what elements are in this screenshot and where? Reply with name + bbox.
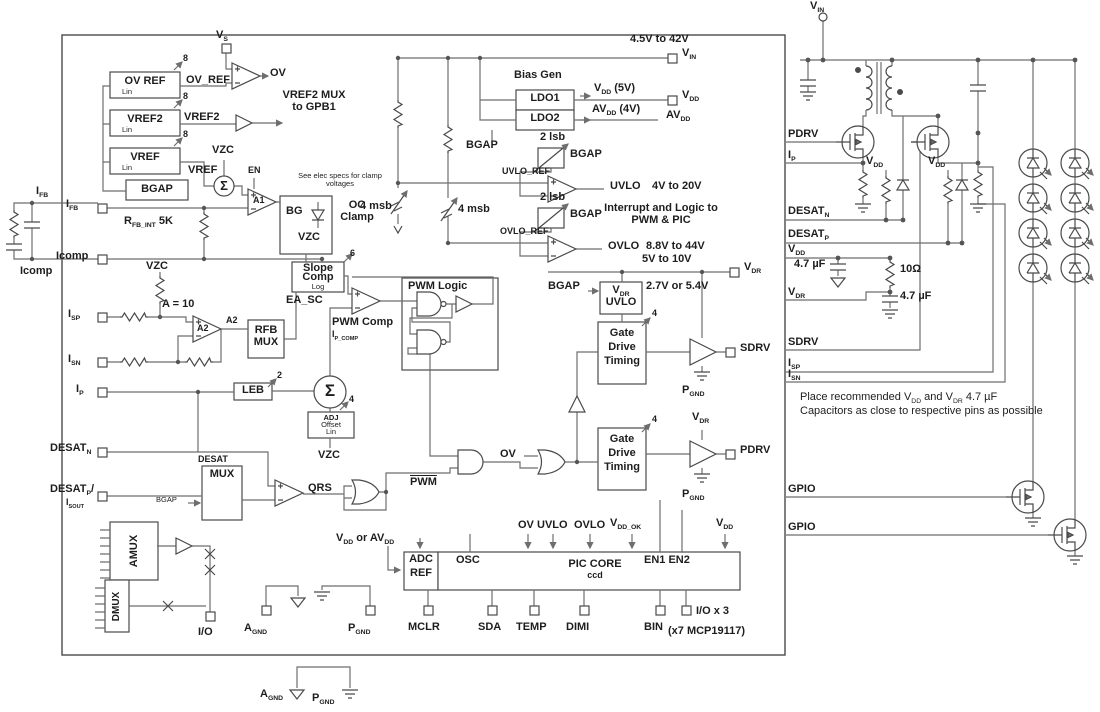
agnd-pin-label: AGND bbox=[244, 623, 267, 637]
bin-pin-label: BIN bbox=[644, 622, 663, 634]
uvlo-ref-label: UVLO_REF bbox=[502, 167, 550, 177]
bgap-block-label: BGAP bbox=[126, 184, 188, 196]
up-buffer-icon bbox=[569, 396, 585, 412]
desatn-pullup-icon bbox=[882, 176, 890, 204]
transformer-secondary-icon bbox=[886, 66, 892, 110]
pgnd-pin-label: PGND bbox=[348, 623, 370, 637]
ext-vdr-label: VDR bbox=[788, 287, 805, 301]
bgap-trim-label: BGAP bbox=[570, 209, 602, 221]
msb4-label: 4 msb bbox=[458, 204, 490, 216]
pullup-vdd-label-2: VDD bbox=[928, 156, 945, 170]
pic-uvlo-label: UVLO bbox=[537, 520, 568, 532]
msb-trim2-icon bbox=[441, 198, 457, 221]
sda-pin-label: SDA bbox=[478, 622, 501, 634]
lin-label: Lin bbox=[122, 126, 132, 134]
pdrv-pin-label: PDRV bbox=[740, 445, 770, 457]
desat-n-pin-label: DESATN bbox=[50, 443, 91, 457]
isout-label: ISOUT bbox=[66, 498, 84, 510]
ext-vdd-label: VDD bbox=[788, 244, 805, 258]
vdr-uvlo-label-2: UVLO bbox=[600, 297, 642, 309]
output-cap-icon bbox=[970, 85, 986, 91]
gain-label: A = 10 bbox=[162, 299, 194, 311]
desat-p-pin-label: DESATP/ bbox=[50, 484, 94, 498]
ifb-pin-label: IFB bbox=[66, 199, 78, 213]
sdrv-driver-icon bbox=[690, 339, 716, 365]
rfb-int-label: RFB_INT 5K bbox=[124, 216, 173, 230]
vref2-block-label: VREF2 bbox=[110, 114, 180, 126]
ip-comp-label: IP_COMP bbox=[332, 330, 358, 342]
lin-label: Lin bbox=[122, 88, 132, 96]
a2-signal-label: A2 bbox=[226, 316, 238, 326]
filter-resistor-icon bbox=[886, 260, 894, 288]
qrs-label: QRS bbox=[308, 483, 332, 495]
ovlo-comparator-icon bbox=[548, 236, 576, 262]
divider-arrow-icon bbox=[394, 226, 402, 233]
gpio1-gnd-icon bbox=[1025, 518, 1041, 526]
desat-label: DESAT bbox=[198, 455, 228, 465]
isp-pin-label: ISP bbox=[68, 309, 80, 323]
vzc-label: VZC bbox=[318, 450, 340, 462]
pgnd2-ground-icon bbox=[694, 474, 710, 482]
a1-label: A1 bbox=[253, 196, 265, 206]
led-icon bbox=[1019, 184, 1051, 214]
ea-sc-label: EA_SC bbox=[286, 295, 323, 307]
vdr-select-label: 2.7V or 5.4V bbox=[646, 281, 708, 293]
transformer-primary-icon bbox=[866, 66, 872, 110]
vdd-pin-label: VDD bbox=[682, 90, 699, 104]
vdd-5v-label: VDD (5V) bbox=[594, 83, 635, 97]
rfb-mux-label-2: MUX bbox=[248, 337, 284, 349]
dot-phase-icon bbox=[898, 90, 903, 95]
vdr-cap-icon bbox=[882, 296, 898, 302]
gdt1-label-2: Drive bbox=[598, 342, 646, 354]
gpio2-label: GPIO bbox=[788, 522, 816, 534]
lsb2-label: 2 lsb bbox=[540, 132, 565, 144]
desatp-pullup-icon bbox=[944, 176, 952, 204]
bgap-vdr-label: BGAP bbox=[548, 281, 580, 293]
transformer-core bbox=[877, 62, 881, 114]
desat-mux-label: MUX bbox=[202, 469, 242, 481]
bus2-label: 2 bbox=[277, 371, 282, 381]
pullup-vdd-label-1: VDD bbox=[866, 156, 883, 170]
comp-capacitor-icon bbox=[6, 244, 22, 250]
ov-ref-signal-label: OV_REF bbox=[186, 75, 230, 87]
io-pin-label: I/O bbox=[198, 627, 213, 639]
amux-label: AMUX bbox=[110, 522, 158, 580]
ovlo-ref-label: OVLO_REF bbox=[500, 227, 549, 237]
uvlo-range-label: 4V to 20V bbox=[652, 181, 702, 193]
ovlo-label: OVLO bbox=[608, 241, 639, 253]
bgap-small-label: BGAP bbox=[156, 496, 177, 504]
ext-desat-n-label: DESATN bbox=[788, 206, 829, 220]
ip-pin-label: IP bbox=[76, 384, 84, 398]
pwm-comp-icon bbox=[352, 288, 380, 314]
ifb-node-label: IFB bbox=[36, 186, 48, 200]
desat-comparator-icon bbox=[275, 480, 303, 506]
ext-desat-p-label: DESATP bbox=[788, 229, 829, 243]
ov-comparator-icon bbox=[232, 63, 260, 89]
slope-label-3: Log bbox=[292, 283, 344, 291]
gdt1-label-3: Timing bbox=[598, 356, 646, 368]
bgap-trim-label: BGAP bbox=[570, 149, 602, 161]
external-wires bbox=[786, 21, 1075, 556]
ground-legend-wire bbox=[297, 667, 350, 688]
vdr-drive-label: VDR bbox=[692, 412, 709, 426]
ip-sense-resistor-icon bbox=[859, 170, 867, 198]
icomp-node-label: Icomp bbox=[20, 266, 52, 278]
isn-pin-label: ISN bbox=[68, 354, 81, 368]
bus4-label: 4 bbox=[652, 309, 657, 319]
avdd-4v-label: AVDD (4V) bbox=[592, 104, 640, 118]
vref2-mux-note: VREF2 MUX to GPB1 bbox=[282, 90, 346, 114]
bus8-label: 8 bbox=[183, 54, 188, 64]
ext-ip-label: IP bbox=[788, 150, 796, 164]
isn-resistor-icon bbox=[120, 358, 148, 366]
led-icon bbox=[1061, 184, 1093, 214]
led-icon bbox=[1019, 254, 1051, 284]
vdd-ok-label: VDD_OK bbox=[610, 518, 641, 532]
sum-symbol: Σ bbox=[218, 179, 230, 193]
vzc-label: VZC bbox=[298, 232, 320, 244]
pwm-comp-label: PWM Comp bbox=[332, 317, 393, 329]
drive-or-gate-icon bbox=[538, 450, 565, 474]
input-cap-icon bbox=[800, 80, 816, 86]
ip-sense-gnd-icon bbox=[855, 204, 871, 212]
isense-resistor-icon bbox=[974, 170, 982, 198]
uvlo-label: UVLO bbox=[610, 181, 641, 193]
legend-pgnd-icon bbox=[342, 690, 358, 698]
vdr-cap-label: 4.7 µF bbox=[900, 291, 931, 303]
rfb-int-resistor-icon bbox=[200, 212, 208, 240]
lsb2-label: 2 lsb bbox=[540, 192, 565, 204]
ov-ref-block-label: OV REF bbox=[110, 76, 180, 88]
ldo1-label: LDO1 bbox=[516, 93, 574, 105]
dmux-label: DMUX bbox=[105, 580, 129, 632]
vin-range-label: 4.5V to 42V bbox=[630, 34, 689, 46]
vdd-cap-label: 4.7 µF bbox=[794, 259, 825, 271]
pdrv-driver-icon bbox=[690, 441, 716, 467]
vdr-pin-label: VDR bbox=[744, 262, 761, 276]
qrs-or-gate-icon bbox=[352, 480, 379, 504]
input-cap-gnd-icon bbox=[800, 92, 816, 100]
pwm-logic-label: PWM Logic bbox=[408, 281, 467, 293]
vdr-range-label: 5V to 10V bbox=[642, 254, 692, 266]
msb-trim1-icon bbox=[391, 191, 407, 214]
desatn-diode-icon bbox=[897, 180, 909, 190]
ext-pdrv-label: PDRV bbox=[788, 129, 818, 141]
legend-agnd-label: AGND bbox=[260, 689, 283, 703]
bus4-label: 4 bbox=[349, 395, 354, 405]
pwm-bar-label: PWM bbox=[410, 477, 437, 489]
primary-mosfet-icon bbox=[836, 126, 874, 158]
ext-isn-label: ISN bbox=[788, 369, 801, 383]
temp-pin-label: TEMP bbox=[516, 622, 547, 634]
uvlo-div-resistor-icon bbox=[394, 100, 402, 128]
desatp-diode-icon bbox=[956, 180, 968, 190]
pgnd1-ground-icon bbox=[694, 372, 710, 380]
comp-capacitor2-icon bbox=[24, 222, 40, 228]
adj-label-3: Lin bbox=[308, 428, 354, 436]
placement-note-2: Capacitors as close to respective pins a… bbox=[800, 406, 1043, 418]
block-diagram-canvas: VS OV_REF OV OV REF Lin VREF2 Lin VREF L… bbox=[0, 0, 1100, 712]
dot-phase-icon bbox=[856, 68, 861, 73]
amux-buffer-icon bbox=[176, 538, 192, 554]
gdt2-label-2: Drive bbox=[598, 448, 646, 460]
ldo2-label: LDO2 bbox=[516, 113, 574, 125]
led-icon bbox=[1061, 219, 1093, 249]
agnd-symbol-icon bbox=[291, 598, 305, 607]
ccd-label: ccd bbox=[520, 571, 670, 581]
adc-label: ADC bbox=[404, 554, 438, 566]
ext-vin-label: VIN bbox=[810, 1, 824, 15]
gdt2-label-1: Gate bbox=[598, 434, 646, 446]
msb4-label: 4 msb bbox=[360, 201, 392, 213]
bg-label: BG bbox=[286, 206, 303, 218]
isp-resistor-icon bbox=[120, 313, 148, 321]
sum-symbol-big: Σ bbox=[322, 382, 338, 400]
led-icon bbox=[1019, 149, 1051, 179]
bus6-label: 6 bbox=[350, 249, 355, 259]
vref-signal-label: VREF bbox=[188, 165, 217, 177]
legend-agnd-icon bbox=[290, 690, 304, 699]
iox3-pin-label: I/O x 3 bbox=[696, 606, 729, 618]
vin-pin-label: VIN bbox=[682, 48, 696, 62]
vdr-cap-gnd-icon bbox=[882, 310, 898, 318]
isense-gnd-icon bbox=[970, 204, 986, 212]
mclr-pin-label: MCLR bbox=[408, 622, 440, 634]
comp-resistor-icon bbox=[10, 210, 18, 238]
pgnd-label: PGND bbox=[682, 489, 704, 503]
fb-resistor-icon bbox=[185, 358, 213, 366]
sync-mosfet-icon bbox=[911, 126, 949, 158]
pic-ov-label: OV bbox=[518, 520, 534, 532]
avdd-label: AVDD bbox=[666, 110, 690, 124]
en1-en2-label: EN1 EN2 bbox=[644, 555, 690, 567]
dimi-pin-label: DIMI bbox=[566, 622, 589, 634]
bus8-label: 8 bbox=[183, 130, 188, 140]
en-label: EN bbox=[248, 166, 261, 176]
vzc-label: VZC bbox=[212, 145, 234, 157]
ov-mid-label: OV bbox=[500, 449, 516, 461]
vdd-cap-icon bbox=[830, 264, 846, 270]
bias-gen-label: Bias Gen bbox=[514, 70, 562, 82]
bgap-ldo-label: BGAP bbox=[466, 140, 498, 152]
bus4-label: 4 bbox=[652, 415, 657, 425]
pic-ovlo-label: OVLO bbox=[574, 520, 605, 532]
gate-drive-wires bbox=[646, 352, 726, 552]
gdt2-label-3: Timing bbox=[598, 462, 646, 474]
icomp-pin-label: Icomp bbox=[56, 251, 88, 263]
leb-label: LEB bbox=[234, 385, 272, 397]
gdt1-label-1: Gate bbox=[598, 328, 646, 340]
led-icon bbox=[1061, 254, 1093, 284]
clamp-note: See elec specs for clamp voltages bbox=[290, 172, 390, 188]
bus8-label: 8 bbox=[183, 92, 188, 102]
lin-label: Lin bbox=[122, 164, 132, 172]
ext-sdrv-label: SDRV bbox=[788, 337, 818, 349]
pgnd-symbol-icon bbox=[314, 592, 330, 600]
led-icon bbox=[1019, 219, 1051, 249]
osc-label: OSC bbox=[456, 555, 480, 567]
r10-label: 10Ω bbox=[900, 264, 921, 276]
vref-block-label: VREF bbox=[110, 152, 180, 164]
gpio-mosfet1-icon bbox=[1006, 481, 1044, 513]
gpio2-gnd-icon bbox=[1067, 556, 1083, 564]
ovlo-div-resistor-icon bbox=[444, 125, 452, 153]
gpio-mosfet2-icon bbox=[1048, 519, 1086, 551]
gpio1-label: GPIO bbox=[788, 484, 816, 496]
ref-label: REF bbox=[404, 568, 438, 580]
vref2-buffer-icon bbox=[236, 115, 252, 131]
pgnd-label: PGND bbox=[682, 385, 704, 399]
placement-note-1: Place recommended VDD and VDR 4.7 µF bbox=[800, 392, 997, 406]
vs-pin-label: VS bbox=[216, 30, 228, 44]
mcp-count-label: (x7 MCP19117) bbox=[668, 626, 745, 638]
vzc-label: VZC bbox=[146, 261, 168, 273]
vdd-or-avdd-label: VDD or AVDD bbox=[336, 533, 394, 547]
pic-vdd-label: VDD bbox=[716, 518, 733, 532]
drive-and-gate-icon bbox=[458, 450, 483, 474]
ovlo-range-label: 8.8V to 44V bbox=[646, 241, 705, 253]
sdrv-pin-label: SDRV bbox=[740, 343, 770, 355]
legend-pgnd-label: PGND bbox=[312, 693, 334, 707]
led-icon bbox=[1061, 149, 1093, 179]
vref2-signal-label: VREF2 bbox=[184, 112, 219, 124]
ov-output-label: OV bbox=[270, 68, 286, 80]
vdd-cap-gnd-icon bbox=[831, 278, 845, 287]
schematic-graphics bbox=[0, 0, 1100, 712]
a2-amp-label: A2 bbox=[197, 324, 209, 334]
